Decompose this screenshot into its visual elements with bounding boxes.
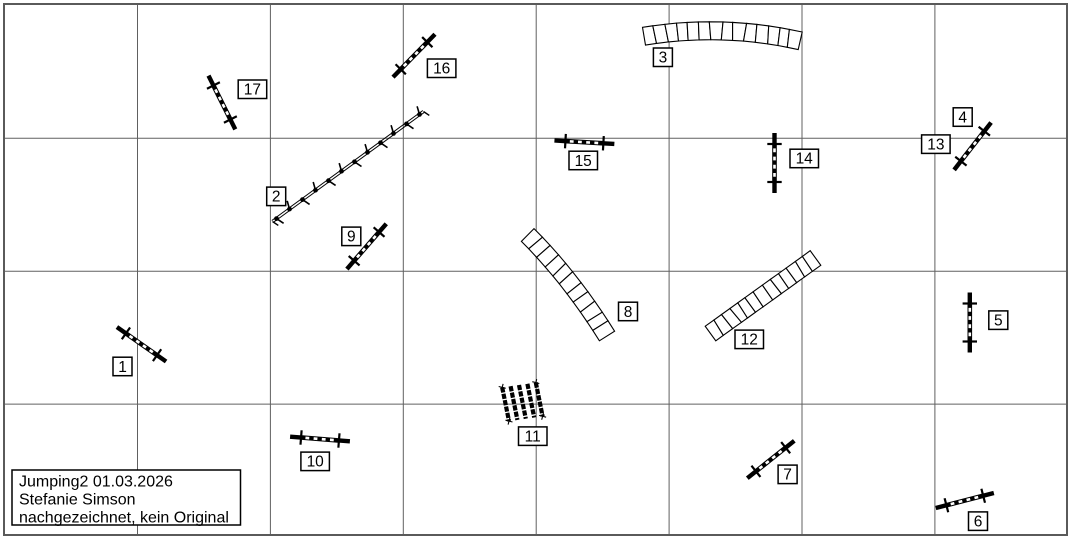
svg-text:8: 8: [624, 304, 633, 321]
svg-text:9: 9: [347, 229, 356, 246]
svg-text:15: 15: [575, 153, 592, 170]
svg-text:3: 3: [659, 50, 668, 67]
svg-text:14: 14: [796, 151, 814, 168]
svg-text:11: 11: [525, 428, 541, 445]
svg-text:Stefanie Simson: Stefanie Simson: [19, 492, 136, 509]
svg-text:Jumping2 01.03.2026: Jumping2 01.03.2026: [19, 474, 173, 491]
svg-text:2: 2: [272, 189, 281, 206]
svg-text:12: 12: [741, 332, 758, 349]
svg-text:7: 7: [783, 467, 792, 484]
svg-text:16: 16: [433, 61, 450, 78]
svg-text:4: 4: [958, 109, 967, 126]
svg-text:10: 10: [307, 454, 325, 471]
svg-text:6: 6: [974, 513, 983, 530]
svg-text:13: 13: [927, 137, 944, 154]
svg-text:5: 5: [994, 313, 1003, 330]
svg-text:1: 1: [118, 359, 127, 376]
svg-text:nachgezeichnet, kein Original: nachgezeichnet, kein Original: [19, 510, 229, 527]
svg-text:17: 17: [244, 82, 261, 99]
